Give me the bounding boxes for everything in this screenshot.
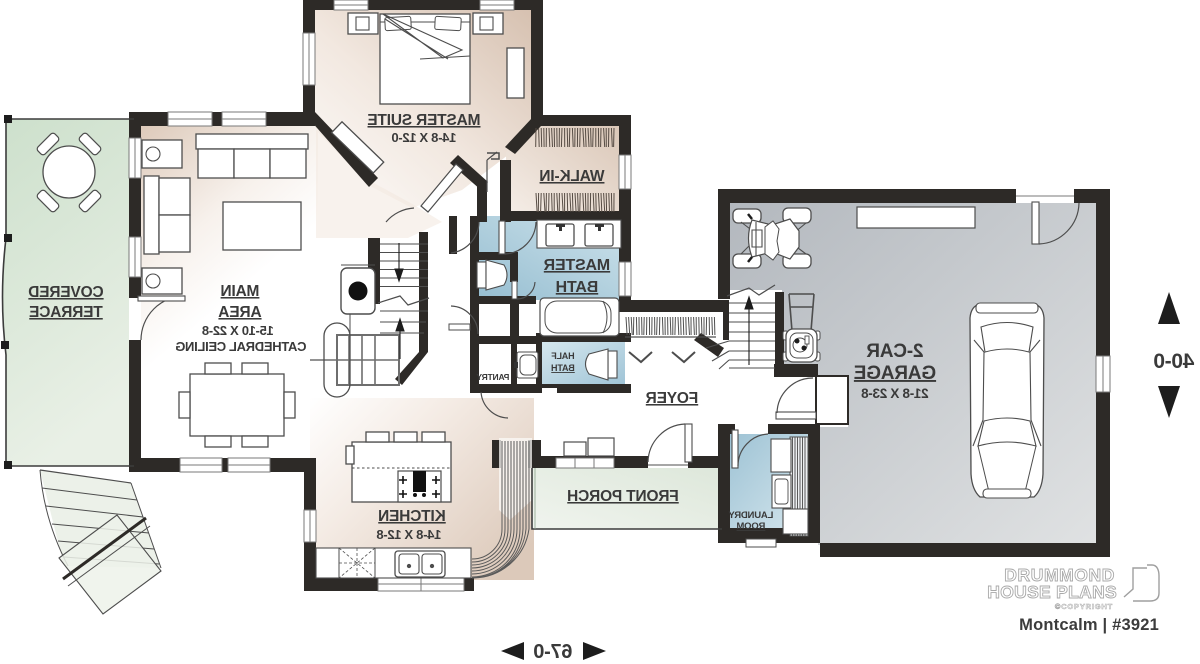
svg-text:FOYER: FOYER: [646, 390, 698, 407]
svg-text:COVERED: COVERED: [28, 284, 103, 301]
svg-text:BATH: BATH: [551, 363, 575, 373]
svg-text:2-CAR: 2-CAR: [866, 341, 924, 362]
svg-text:AREA: AREA: [218, 304, 261, 321]
svg-text:FRONT PORCH: FRONT PORCH: [567, 488, 678, 505]
svg-text:MASTER SUITE: MASTER SUITE: [368, 112, 481, 129]
svg-text:LAUNDRY: LAUNDRY: [728, 510, 774, 521]
svg-text:14-8 X 12-0: 14-8 X 12-0: [392, 130, 457, 145]
svg-text:HOUSE PLANS: HOUSE PLANS: [987, 582, 1117, 602]
svg-text:40-0: 40-0: [1154, 350, 1195, 373]
svg-text:HALF: HALF: [551, 351, 575, 361]
svg-text:GARAGE: GARAGE: [854, 363, 936, 384]
svg-text:MAIN: MAIN: [221, 283, 260, 300]
svg-text:67-0: 67-0: [533, 641, 572, 663]
svg-text:21-8 X 23-8: 21-8 X 23-8: [861, 386, 929, 401]
svg-text:14-8 X 12-8: 14-8 X 12-8: [377, 527, 442, 542]
svg-text:ROOM: ROOM: [736, 521, 765, 532]
svg-text:©COPYRIGHT: ©COPYRIGHT: [1055, 602, 1113, 611]
svg-text:15-10 X 22-8: 15-10 X 22-8: [202, 323, 274, 338]
svg-text:WALK-IN: WALK-IN: [540, 168, 605, 185]
svg-text:Montcalm | #3921: Montcalm | #3921: [1019, 616, 1159, 634]
svg-text:PANTRY: PANTRY: [476, 372, 509, 382]
svg-text:KITCHEN: KITCHEN: [378, 508, 446, 525]
svg-text:CATHEDRAL CEILING: CATHEDRAL CEILING: [175, 339, 306, 354]
svg-text:TERRACE: TERRACE: [29, 304, 103, 321]
svg-text:MASTER: MASTER: [543, 257, 610, 274]
svg-text:BATH: BATH: [556, 279, 598, 296]
